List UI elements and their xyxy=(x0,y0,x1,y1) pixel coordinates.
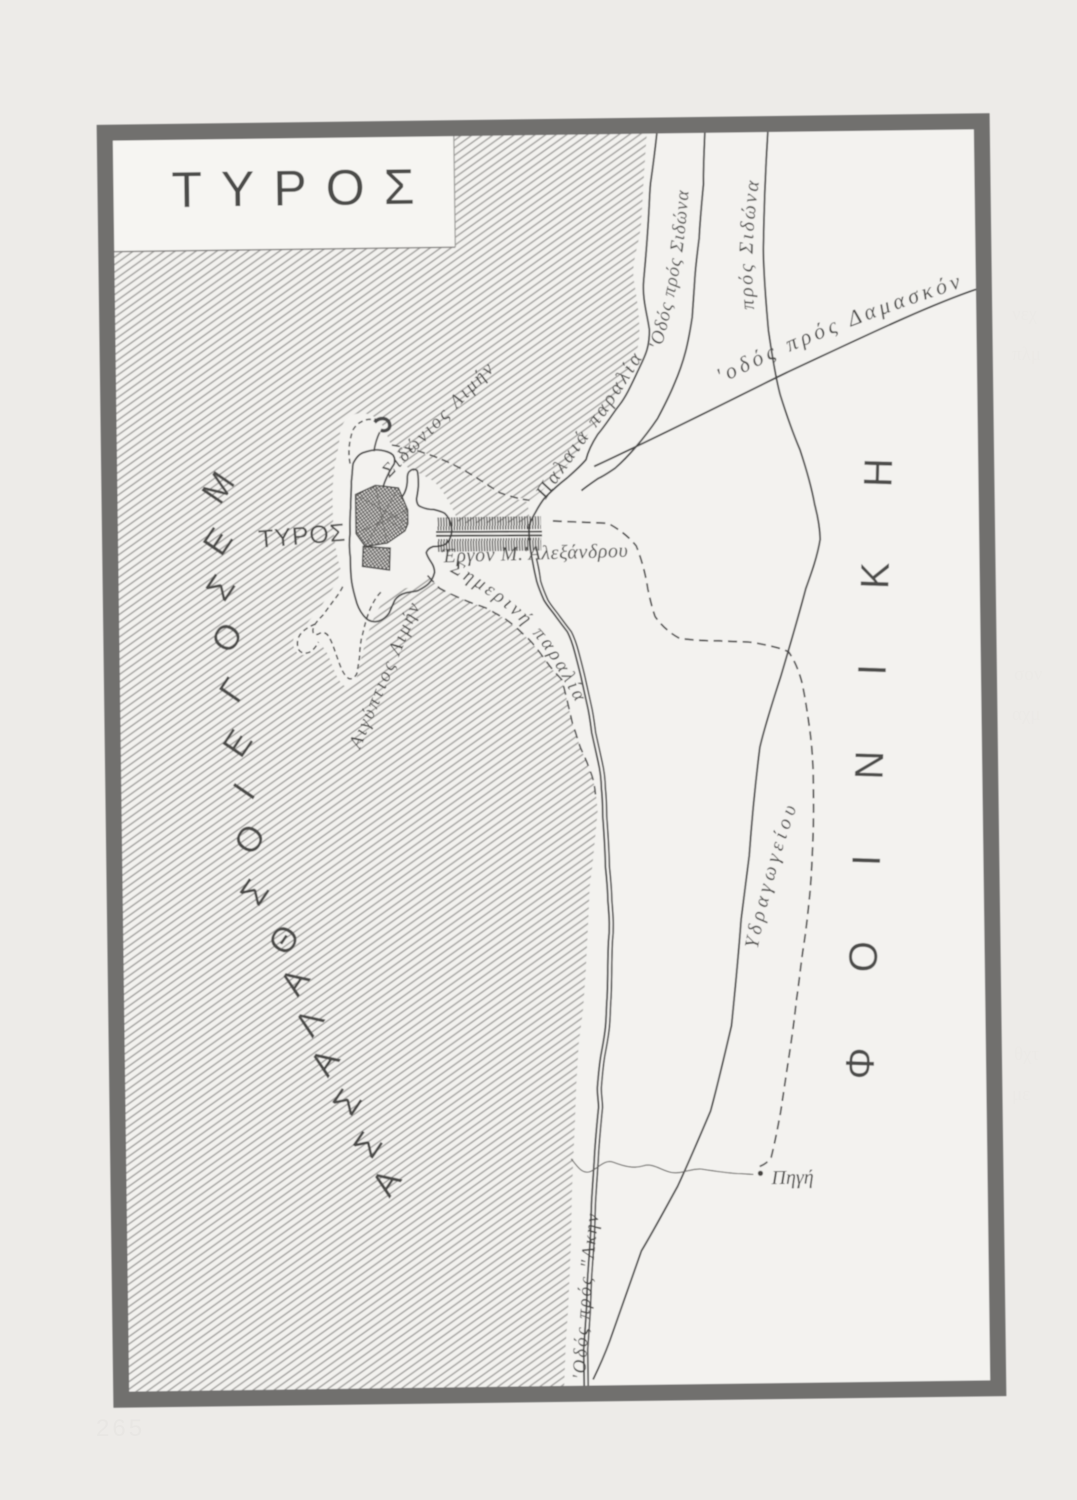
svg-text:νεχ: νεχ xyxy=(1012,304,1038,325)
svg-text:ΤΥΡΟΣ: ΤΥΡΟΣ xyxy=(171,158,434,217)
svg-text:σον: σον xyxy=(1014,664,1043,685)
svg-text:με: με xyxy=(1012,1084,1030,1105)
svg-text:265: 265 xyxy=(96,1415,145,1442)
svg-text:Πηγή: Πηγή xyxy=(770,1167,814,1190)
svg-text:αχμ: αχμ xyxy=(1012,704,1041,725)
svg-text:πλμ: πλμ xyxy=(1012,344,1041,365)
svg-text:θχτ: θχτ xyxy=(1014,1044,1040,1065)
